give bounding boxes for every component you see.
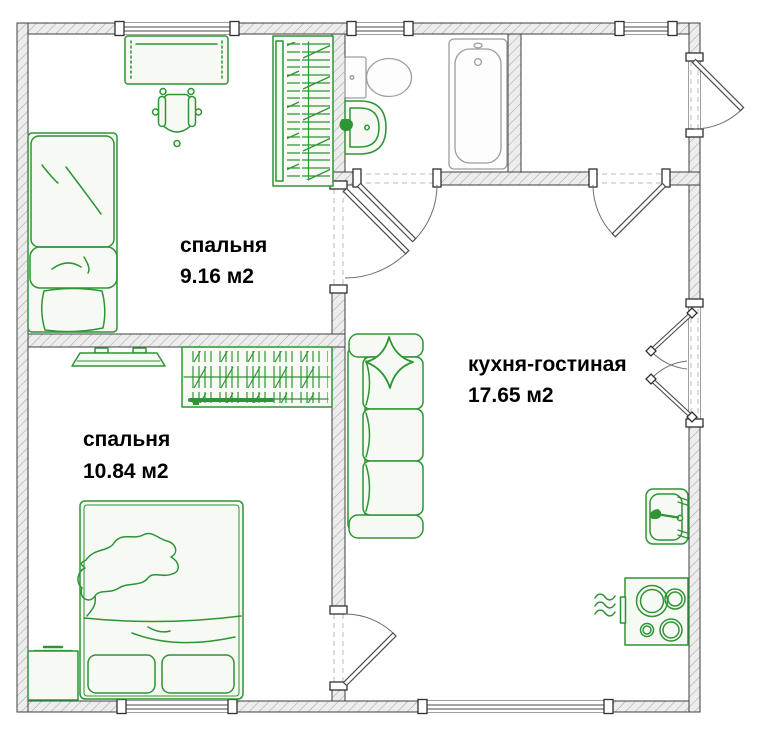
wall-bathroom-south-b xyxy=(437,172,593,185)
office-chair xyxy=(153,89,202,147)
nightstand xyxy=(28,647,78,700)
window-hallway xyxy=(615,22,677,36)
wall-bedroom1-bedroom2 xyxy=(28,334,345,347)
floor-plan-canvas: спальня 9.16 м2 спальня 10.84 м2 кухня-г… xyxy=(0,0,760,731)
hallway-kitchen-door xyxy=(589,169,670,237)
window-bedroom2 xyxy=(117,700,237,714)
window-bathroom xyxy=(347,22,413,36)
tub-faucet xyxy=(474,43,482,48)
room-label-bedroom-1: спальня 9.16 м2 xyxy=(180,234,267,288)
wash-basin xyxy=(340,101,387,154)
room-name: кухня-гостиная xyxy=(468,353,627,376)
bathtub xyxy=(449,39,507,169)
window-kitchen xyxy=(418,700,613,714)
wall-left xyxy=(17,23,28,712)
tub-drain xyxy=(475,59,482,66)
wall-bedroom1-bathroom xyxy=(332,34,345,185)
double-bed xyxy=(78,501,243,699)
balcony-double-door xyxy=(646,299,703,427)
wardrobe xyxy=(273,36,333,186)
window-bedroom1 xyxy=(115,22,239,36)
room-label-bedroom-2: спальня 10.84 м2 xyxy=(83,428,170,483)
room-area: 17.65 м2 xyxy=(468,384,554,407)
floor-plan-stage: спальня 9.16 м2 спальня 10.84 м2 кухня-г… xyxy=(0,0,760,731)
bathroom-door xyxy=(353,169,441,242)
vent-waves xyxy=(595,594,615,616)
wall-hallway-south xyxy=(666,172,700,185)
room-label-kitchen-living: кухня-гостиная 17.65 м2 xyxy=(468,353,627,407)
kitchen-sink xyxy=(646,489,688,544)
single-bed xyxy=(28,133,117,332)
bedroom-2-door xyxy=(330,606,396,690)
sofa xyxy=(348,334,423,538)
room-area: 9.16 м2 xyxy=(180,265,254,288)
entrance-door xyxy=(686,53,744,137)
tv xyxy=(72,348,165,366)
wall-bathroom-hallway xyxy=(508,34,521,172)
desk xyxy=(125,36,228,84)
door-leaf xyxy=(343,633,396,686)
toilet xyxy=(345,57,412,98)
pillow xyxy=(162,655,234,693)
stove xyxy=(621,578,689,645)
door-leaf xyxy=(612,183,665,236)
drawer-handle xyxy=(193,401,199,405)
room-name: спальня xyxy=(83,428,170,451)
pillow xyxy=(88,655,155,693)
room-area: 10.84 м2 xyxy=(83,460,169,483)
bookshelf xyxy=(182,347,332,407)
room-name: спальня xyxy=(180,234,267,257)
